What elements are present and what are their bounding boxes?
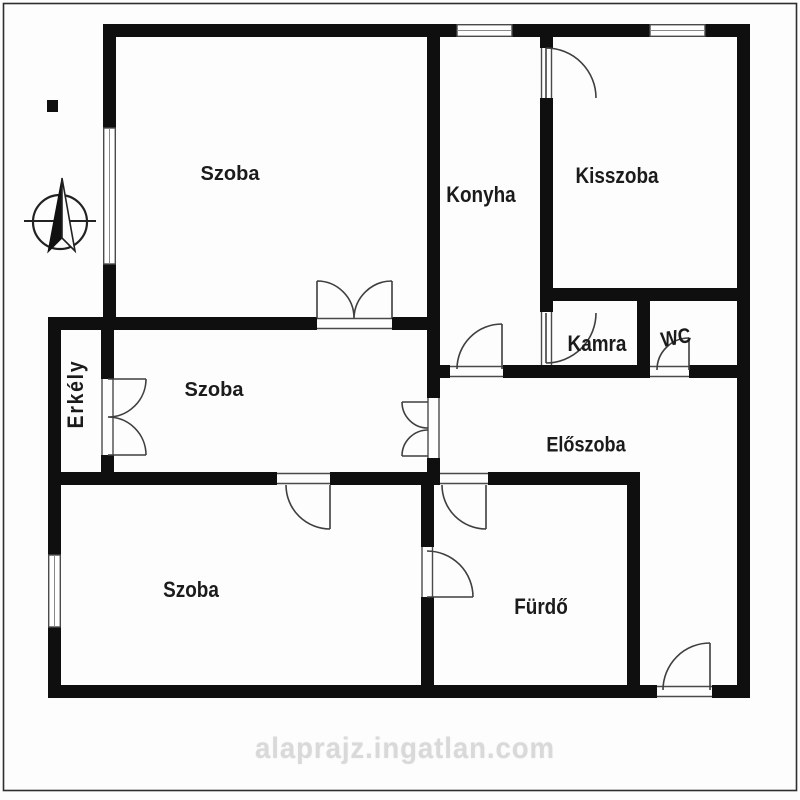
door-szoba-bottom (286, 485, 330, 529)
walls (48, 24, 750, 698)
wall-furdo-right (627, 472, 640, 698)
room-label-kamra: Kamra (568, 333, 627, 355)
wall-mid-a (55, 472, 277, 485)
wall-kisszoba-left-a (540, 24, 553, 48)
wall-konyha-stub (437, 365, 450, 378)
wall-central (427, 24, 440, 398)
wall-szoba1-bottom-a (48, 317, 317, 330)
wall-kamra-wc-divider (637, 301, 650, 378)
compass-rose-icon (24, 178, 96, 252)
room-label-furdo: Fürdő (514, 596, 568, 618)
room-label-kisszoba: Kisszoba (575, 165, 658, 187)
wall-left-upper-a (103, 24, 116, 128)
door-szoba-furdo (427, 551, 473, 597)
wall-top-mid (512, 24, 650, 37)
wall-wc-bottom (689, 365, 737, 378)
double-door-szoba-middle (402, 402, 428, 456)
room-label-szoba-bottom: Szoba (163, 579, 219, 601)
door-konyha (457, 324, 502, 369)
wall-kamra-bottom (503, 365, 650, 378)
wall-left-lower-a (48, 317, 61, 555)
window-left-szoba-top (104, 128, 116, 264)
wall-mid-b (330, 472, 427, 485)
north-needle-icon (48, 178, 62, 252)
wall-kisszoba-left-b (540, 98, 553, 312)
room-label-wc: WC (659, 325, 692, 351)
room-label-szoba-top: Szoba (201, 164, 260, 184)
floorplan-image: Szoba Konyha Kisszoba Szoba Kamra WC Elő… (0, 0, 800, 800)
wall-bottom-b (712, 685, 750, 698)
wall-right (737, 24, 750, 698)
wall-bottom-a (48, 685, 657, 698)
room-label-konyha: Konyha (446, 184, 515, 206)
window-top-konyha (457, 25, 512, 37)
wall-furdo-top (488, 472, 640, 485)
watermark: alaprajz.ingatlan.com (255, 732, 555, 766)
door-kisszoba (546, 48, 596, 98)
wall-erkely-a (101, 326, 114, 379)
room-label-szoba-middle: Szoba (185, 380, 244, 400)
door-furdo (442, 485, 486, 529)
wall-furdo-left-b (421, 597, 434, 690)
wall-furdo-left-a (421, 472, 434, 547)
outer-frame (4, 4, 797, 791)
room-label-eloszoba: Előszoba (546, 435, 625, 456)
door-entrance (663, 643, 710, 690)
double-door-szoba-top (317, 281, 392, 318)
window-left-szoba-bottom (49, 555, 61, 627)
floorplan-drawing (0, 0, 800, 800)
square-dot (47, 100, 58, 112)
wall-top-left (103, 24, 457, 37)
wall-kisszoba-bottom (540, 288, 750, 301)
window-top-kisszoba (650, 25, 705, 37)
room-label-erkely: Erkély (65, 360, 87, 429)
